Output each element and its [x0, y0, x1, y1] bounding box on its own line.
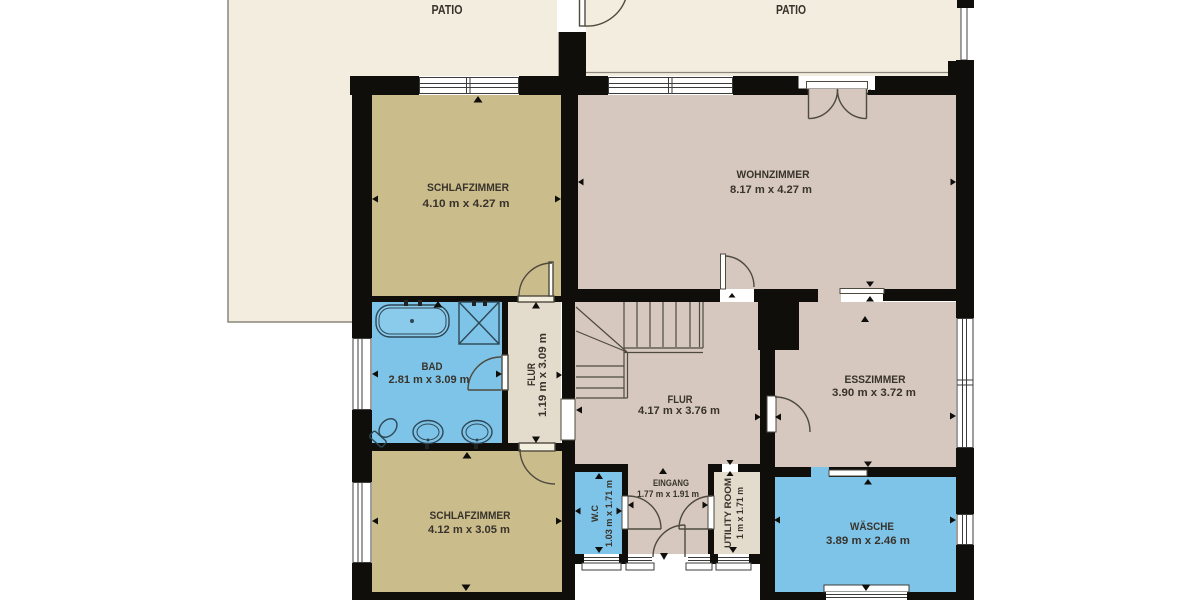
svg-text:8.17 m x 4.27 m: 8.17 m x 4.27 m [730, 184, 812, 196]
svg-text:2.81 m x 3.09 m: 2.81 m x 3.09 m [389, 374, 470, 386]
svg-text:4.10 m x 4.27 m: 4.10 m x 4.27 m [423, 198, 510, 210]
svg-text:3.90 m x 3.72 m: 3.90 m x 3.72 m [832, 387, 916, 399]
svg-text:UTILITY ROOM: UTILITY ROOM [723, 478, 734, 548]
svg-text:W.C: W.C [590, 505, 601, 522]
svg-text:WOHNZIMMER: WOHNZIMMER [737, 169, 810, 181]
svg-text:WÄSCHE: WÄSCHE [850, 520, 894, 533]
svg-text:1 m x 1.71 m: 1 m x 1.71 m [735, 487, 746, 539]
svg-text:SCHLAFZIMMER: SCHLAFZIMMER [427, 182, 509, 194]
svg-text:3.89 m x 2.46 m: 3.89 m x 2.46 m [826, 535, 910, 547]
svg-text:PATIO: PATIO [432, 2, 463, 17]
svg-text:BAD: BAD [422, 361, 443, 373]
svg-text:1.03 m x 1.71 m: 1.03 m x 1.71 m [604, 480, 615, 547]
svg-text:EINGANG: EINGANG [653, 478, 689, 489]
svg-text:1.19 m x 3.09 m: 1.19 m x 3.09 m [537, 333, 549, 417]
svg-text:4.17 m x 3.76 m: 4.17 m x 3.76 m [638, 405, 720, 417]
svg-text:1.77 m x 1.91 m: 1.77 m x 1.91 m [637, 489, 699, 500]
svg-text:SCHLAFZIMMER: SCHLAFZIMMER [430, 510, 511, 522]
svg-text:ESSZIMMER: ESSZIMMER [845, 374, 906, 386]
svg-text:PATIO: PATIO [776, 2, 806, 17]
svg-text:4.12 m x 3.05 m: 4.12 m x 3.05 m [428, 524, 510, 536]
